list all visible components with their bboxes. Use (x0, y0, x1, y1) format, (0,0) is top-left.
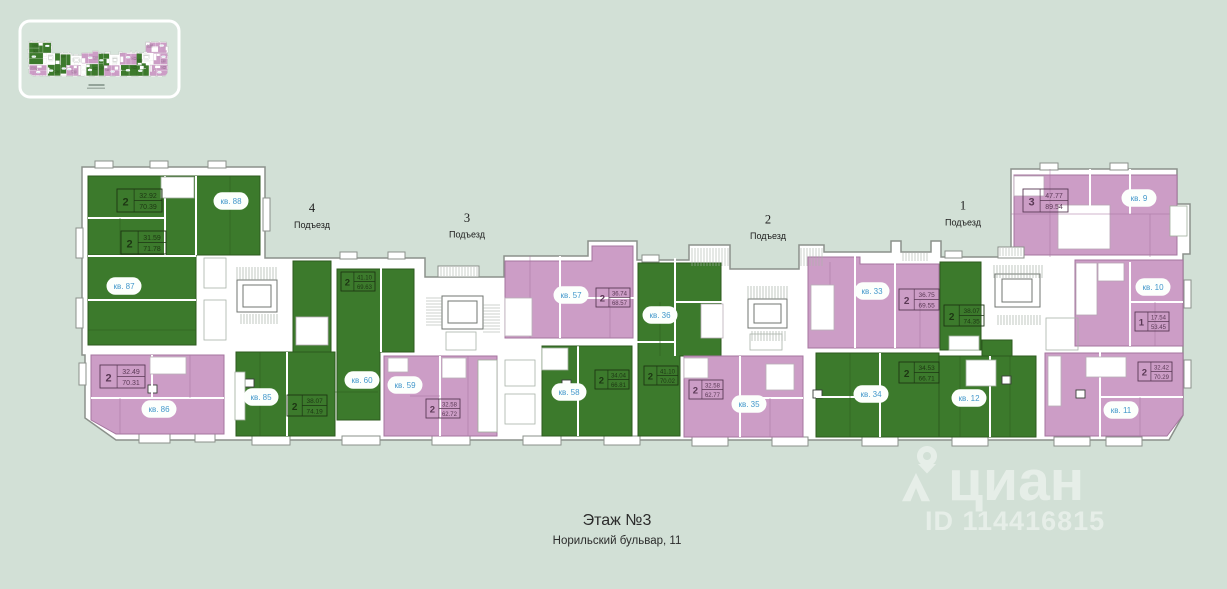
svg-text:циан: циан (948, 449, 1084, 513)
svg-text:Подъезд: Подъезд (750, 231, 787, 241)
svg-text:3: 3 (464, 211, 470, 225)
svg-text:2: 2 (765, 213, 771, 227)
svg-text:4: 4 (309, 201, 316, 215)
svg-text:Норильский бульвар, 11: Норильский бульвар, 11 (553, 535, 682, 547)
svg-text:ID 114416815: ID 114416815 (925, 506, 1105, 536)
svg-text:Подъезд: Подъезд (294, 220, 331, 230)
svg-text:Подъезд: Подъезд (449, 230, 486, 240)
svg-text:1: 1 (960, 199, 966, 213)
svg-text:Подъезд: Подъезд (945, 218, 982, 228)
svg-text:Этаж №3: Этаж №3 (583, 512, 652, 529)
